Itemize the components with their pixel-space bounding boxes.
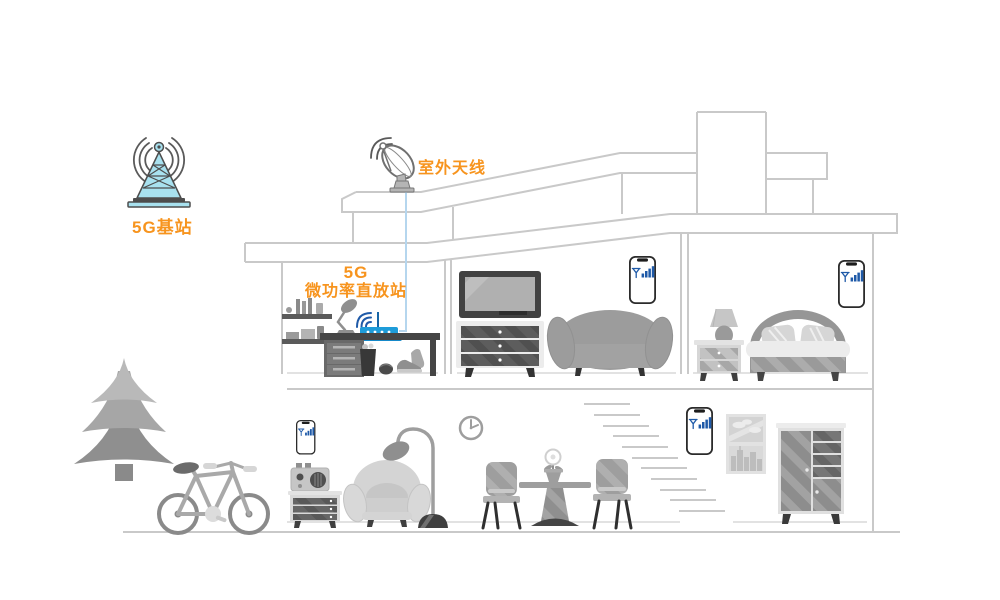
repeater-label: 5G 微功率直放站 [290,263,422,301]
satellite-dish-icon [371,138,420,192]
bed [746,310,850,381]
desk-lamp [336,296,360,335]
phone-signal-icon-living [630,257,655,303]
flower-pot [543,450,564,483]
window-picture [726,414,766,474]
outdoor-antenna-label: 室外天线 [418,160,486,178]
nightstand [694,340,744,381]
illustration [0,0,1000,600]
tv [459,271,541,318]
phone-signal-icon-downstairs [297,421,315,454]
scene: 5G基站 室外天线 5G 微功率直放站 [0,0,1000,600]
trash-can [360,344,376,377]
dining-chair-left [483,462,520,528]
shoes [397,349,424,373]
tv-stand [456,321,544,377]
phone-signal-icon-stairs [687,408,712,454]
wifi-signal-icon [357,313,371,327]
armchair [340,460,433,527]
base-station-label: 5G基站 [132,218,193,238]
dining-table [519,482,591,526]
radio [291,463,329,491]
phone-signal-icon-bedroom [839,261,864,307]
bicycle [159,461,268,533]
tree [74,358,174,481]
ball [379,364,393,375]
wardrobe [776,423,846,524]
wall-clock [460,417,482,439]
repeater-label-line1: 5G [290,263,422,283]
sofa [544,310,677,376]
table-lamp [710,309,738,345]
dining-chair-right [593,459,631,528]
cell-tower-icon [128,138,190,207]
repeater-label-line2: 微功率直放站 [290,283,422,301]
